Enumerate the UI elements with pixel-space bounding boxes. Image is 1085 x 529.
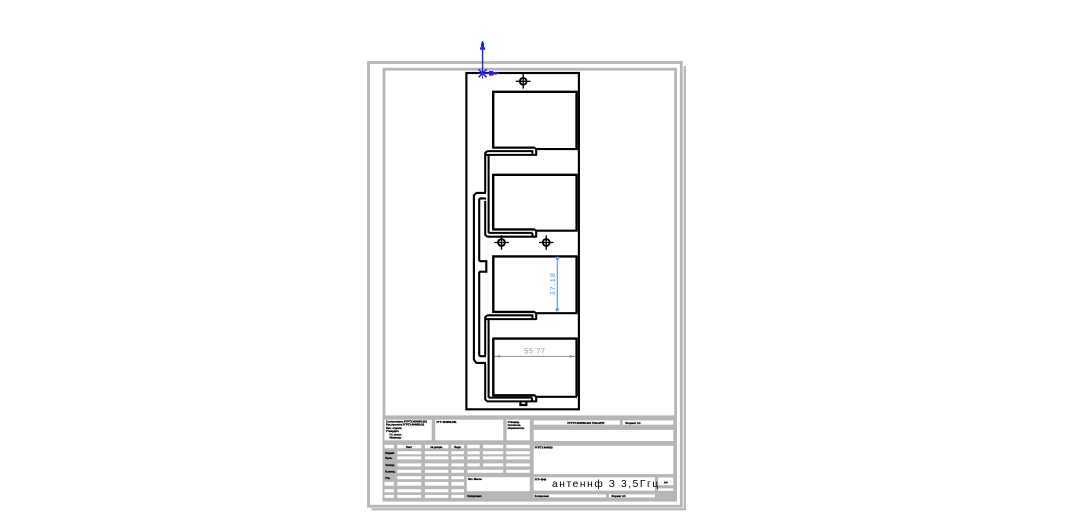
svg-text:Лист: Лист [406,445,413,449]
svg-text:РГР 464659.001: РГР 464659.001 [437,420,458,424]
svg-text:РГРТУ.464659.001 ПЭЗ.МПУ: РГРТУ.464659.001 ПЭЗ.МПУ [567,421,605,425]
svg-text:Лит. Масса: Лит. Масса [468,477,482,481]
svg-text:Разраб.: Разраб. [385,452,395,455]
svg-text:РГРТУ.464659: РГРТУ.464659 [535,446,553,450]
svg-text:55.77: 55.77 [524,348,546,355]
svg-text:Т.контр.: Т.контр. [385,464,395,467]
svg-text:Утв.: Утв. [385,477,390,480]
svg-text:антеннф З 3,5Ггц: антеннф З 3,5Ггц [552,478,660,490]
svg-text:Нормоконтр.: Нормоконтр. [508,426,525,430]
svg-text:Формат А4: Формат А4 [612,494,627,498]
svg-text:А4: А4 [664,481,668,485]
svg-text:Н.контр.: Н.контр. [385,471,396,474]
svg-text:РГР 4646: РГР 4646 [535,477,547,481]
svg-text:Подп.: Подп. [454,445,462,449]
svg-text:Копировал: Копировал [467,494,482,498]
svg-text:Пров.: Пров. [385,457,392,460]
svg-text:№ докум.: № докум. [430,446,442,449]
svg-text:Формат А4: Формат А4 [625,421,641,425]
svg-text:Копировал: Копировал [535,494,550,498]
svg-text:Инженер: Инженер [390,436,402,440]
svg-text:37.18: 37.18 [548,272,557,296]
svg-text:Утвердил: Утвердил [386,429,399,433]
